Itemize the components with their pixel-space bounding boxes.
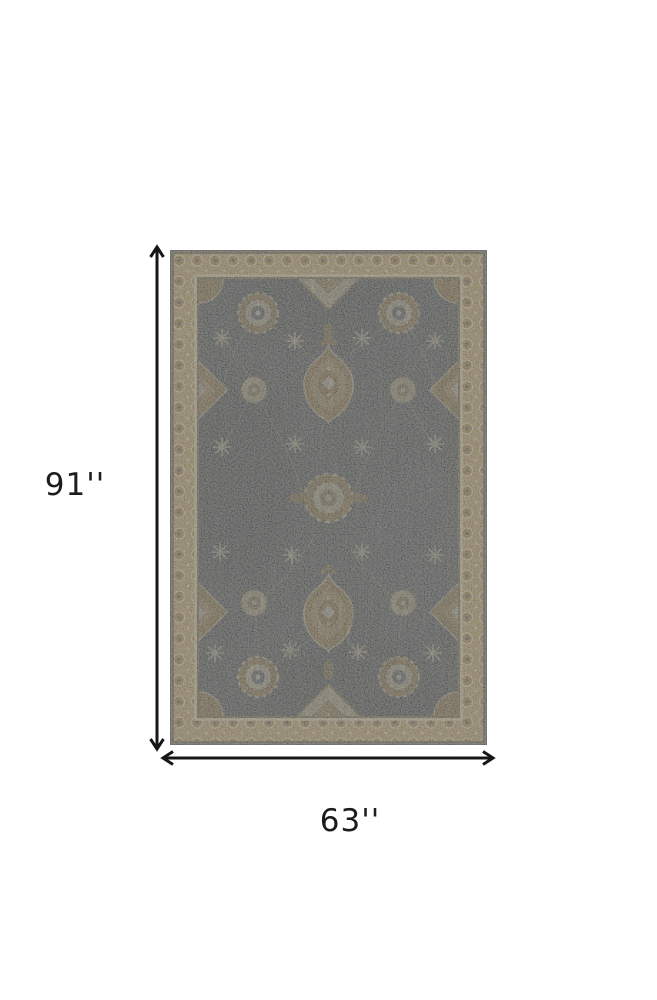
height-dimension-arrow (148, 244, 166, 752)
height-dimension-label: 91'' (30, 466, 120, 504)
width-dimension-label: 63'' (302, 802, 398, 840)
rug-body (170, 250, 487, 745)
rug-illustration (170, 250, 487, 745)
width-dimension-arrow (160, 749, 496, 767)
rug-image (170, 250, 487, 745)
rug-texture-light (170, 250, 487, 745)
product-dimension-diagram: 91'' 63'' (0, 0, 657, 1000)
